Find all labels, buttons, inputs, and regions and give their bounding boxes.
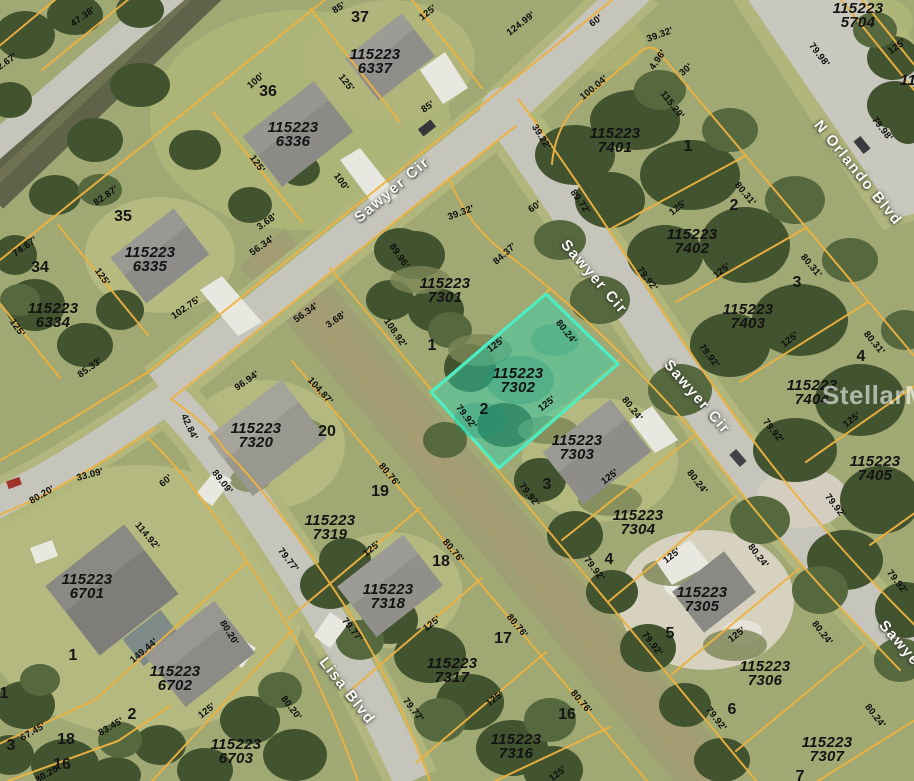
measurement-label: 80.24'	[619, 395, 644, 423]
measurement-label: 67.45'	[18, 720, 47, 743]
measurement-label: 79.92'	[634, 265, 659, 293]
lot-number-label: 3	[793, 274, 802, 292]
measurement-label: 39.22'	[529, 123, 553, 152]
parcel-id-label: 1152237402	[667, 228, 718, 257]
measurement-label: 60'	[157, 472, 174, 489]
parcel-id-label: 1152237306	[740, 660, 791, 689]
street-name-label: Sawyer Cir	[351, 154, 433, 227]
measurement-label: 149.44'	[128, 636, 160, 665]
measurement-label: 80.24'	[809, 619, 834, 647]
measurement-label: 89.72'	[568, 188, 593, 217]
measurement-label: 125'	[599, 467, 621, 487]
measurement-label: 100.04'	[578, 73, 610, 102]
measurement-label: 100'	[331, 171, 351, 193]
lot-number-label: 4	[857, 348, 866, 366]
measurement-label: 30'	[677, 61, 694, 78]
measurement-label: 125'	[547, 764, 569, 781]
lot-number-label: 3	[543, 476, 552, 494]
street-name-label: Sawyer	[875, 617, 914, 675]
measurement-label: 33.09'	[75, 466, 104, 484]
measurement-label: 79.92'	[760, 417, 785, 445]
measurement-label: 79.98'	[869, 115, 894, 143]
measurement-label: 85'	[419, 99, 436, 116]
lot-number-label: 3	[7, 737, 16, 755]
measurement-label: 102.75'	[169, 294, 202, 322]
lot-number-label: 1	[428, 337, 437, 355]
parcel-id-label: 1152236336	[268, 121, 319, 150]
measurement-label: 79.92'	[696, 342, 721, 370]
parcel-id-label: 1152237316	[491, 733, 542, 762]
measurement-label: 115.29'	[658, 89, 686, 121]
measurement-label: 82.87'	[92, 184, 121, 209]
parcel-id-label: 1152236335	[125, 246, 176, 275]
measurement-label: 125'	[485, 335, 507, 355]
parcel-id-label: 1152237319	[305, 514, 356, 543]
measurement-label: 108.92'	[381, 316, 409, 349]
label-layer: 1152236337115223633611522363351152236334…	[0, 0, 914, 781]
measurement-label: 79.92'	[453, 403, 478, 431]
parcel-id-label: 1152237405	[850, 455, 901, 484]
lot-number-label: 36	[259, 83, 277, 101]
measurement-label: 79.92'	[822, 492, 847, 520]
measurement-label: 56.34'	[292, 301, 321, 326]
measurement-label: 3.68'	[255, 211, 279, 232]
measurement-label: 80.24'	[553, 318, 578, 346]
parcel-id-label: 1152236703	[211, 738, 262, 767]
measurement-label: 80.20'	[27, 483, 56, 506]
measurement-label: 79.92'	[516, 481, 541, 509]
lot-number-label: 35	[114, 208, 132, 226]
lot-number-label: 6	[728, 701, 737, 719]
lot-number-label: 18	[57, 731, 75, 749]
measurement-label: 96.94'	[233, 369, 262, 394]
parcel-id-label: 1152235704	[833, 2, 884, 31]
parcel-id-label: 1152237301	[420, 277, 471, 306]
measurement-label: 79.77'	[400, 696, 425, 724]
measurement-label: 125'	[196, 701, 218, 721]
measurement-label: 80.24'	[684, 468, 709, 496]
measurement-label: 60'	[587, 13, 604, 30]
measurement-label: 60'	[526, 199, 543, 216]
measurement-label: 85'	[330, 0, 347, 16]
measurement-label: 47.38'	[69, 5, 98, 30]
measurement-label: 39.32'	[645, 25, 674, 45]
measurement-label: 125'	[841, 410, 863, 430]
measurement-label: 125'	[711, 261, 733, 281]
measurement-label: 125'	[779, 330, 801, 350]
parcel-id-label: 1152236334	[28, 302, 79, 331]
measurement-label: 79.77'	[339, 616, 364, 644]
measurement-label: 125'	[92, 266, 112, 288]
measurement-label: 4.96'	[647, 48, 668, 72]
parcel-id-label: 1152237317	[427, 657, 478, 686]
lot-number-label: 2	[128, 706, 137, 724]
measurement-label: 114.92'	[132, 520, 161, 552]
lot-number-label: 4	[605, 551, 614, 569]
parcel-id-label: 11	[900, 74, 914, 88]
parcel-id-label: 1152237403	[723, 303, 774, 332]
lot-number-label: 18	[432, 553, 450, 571]
measurement-label: 85.33'	[76, 356, 105, 381]
lot-number-label: 1	[684, 138, 693, 156]
lot-number-label: 1	[0, 685, 8, 703]
measurement-label: 79.92'	[884, 568, 909, 596]
parcel-id-label: 1152237401	[590, 127, 641, 156]
lot-number-label: 2	[480, 401, 489, 419]
lot-number-label: 1	[69, 647, 78, 665]
measurement-label: 2.67'	[0, 51, 19, 72]
measurement-label: 79.77'	[275, 546, 300, 574]
measurement-label: 56.34'	[248, 234, 277, 259]
lot-number-label: 34	[31, 259, 49, 277]
lot-number-label: 17	[494, 630, 512, 648]
measurement-label: 80.24'	[862, 702, 887, 730]
parcel-id-label: 1152237303	[552, 434, 603, 463]
measurement-label: 79.98'	[806, 41, 831, 69]
measurement-label: 3.68'	[324, 309, 348, 330]
measurement-label: 124.99'	[505, 10, 538, 39]
parcel-id-label: 1152237302	[493, 367, 544, 396]
lot-number-label: 16	[558, 706, 576, 724]
measurement-label: 125'	[886, 37, 908, 57]
lot-number-label: 20	[318, 423, 336, 441]
street-name-label: Sawyer Cir	[660, 357, 734, 438]
measurement-label: 83.45'	[96, 715, 125, 738]
lot-number-label: 37	[351, 9, 369, 27]
measurement-label: 39.32'	[446, 203, 475, 223]
measurement-label: 125'	[421, 614, 443, 634]
aerial-parcel-map[interactable]: 1152236337115223633611522363351152236334…	[0, 0, 914, 781]
measurement-label: 125'	[247, 153, 267, 175]
measurement-label: 80.20'	[33, 762, 62, 781]
lot-number-label: 7	[796, 768, 805, 781]
measurement-label: 79.92'	[703, 705, 728, 733]
lot-number-label: 2	[730, 197, 739, 215]
stellar-mls-watermark: StellarMLS	[822, 380, 914, 411]
lot-number-label: 5	[666, 625, 675, 643]
measurement-label: 42.84'	[178, 412, 199, 441]
measurement-label: 79.92'	[581, 555, 606, 583]
measurement-label: 125'	[726, 625, 748, 645]
measurement-label: 125'	[484, 689, 506, 709]
measurement-label: 89.96'	[387, 242, 412, 271]
street-name-label: Sawyer Cir	[557, 237, 631, 318]
lot-number-label: 19	[371, 483, 389, 501]
measurement-label: 80.31'	[798, 252, 824, 280]
measurement-label: 80.20'	[278, 694, 303, 722]
parcel-id-label: 1152237307	[802, 736, 853, 765]
measurement-label: 125'	[667, 198, 689, 218]
measurement-label: 125'	[417, 3, 439, 23]
measurement-label: 79.92'	[639, 630, 664, 658]
measurement-label: 125'	[661, 546, 683, 566]
parcel-id-label: 1152237318	[363, 583, 414, 612]
parcel-id-label: 1152236337	[350, 48, 401, 77]
parcel-id-label: 1152236702	[150, 665, 201, 694]
measurement-label: 125'	[536, 394, 558, 414]
measurement-label: 80.20'	[217, 619, 241, 648]
measurement-label: 125'	[7, 317, 27, 339]
parcel-id-label: 1152237320	[231, 422, 282, 451]
measurement-label: 89.09'	[209, 468, 234, 496]
measurement-label: 74.67'	[11, 235, 40, 260]
parcel-id-label: 1152237305	[677, 586, 728, 615]
street-name-label: Lisa Blvd	[316, 654, 379, 728]
measurement-label: 125'	[361, 539, 383, 559]
measurement-label: 80.24'	[745, 542, 770, 570]
measurement-label: 84.37'	[491, 241, 519, 267]
parcel-id-label: 1152236701	[62, 573, 113, 602]
measurement-label: 104.87'	[305, 375, 335, 407]
parcel-id-label: 1152237304	[613, 509, 664, 538]
